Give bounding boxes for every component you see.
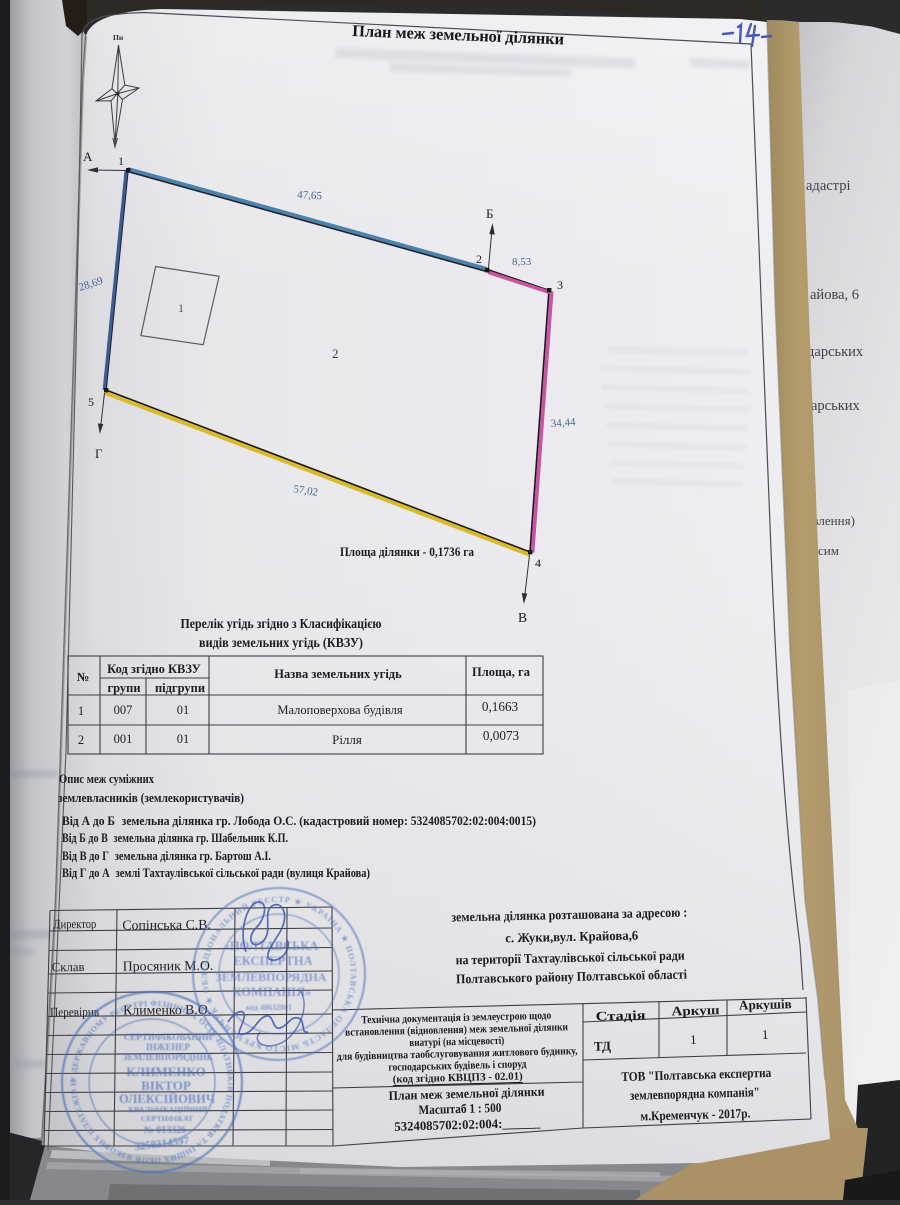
svg-text:КОМПАНІЯ»: КОМПАНІЯ» [233,985,312,999]
svg-text:0,1663: 0,1663 [482,699,519,714]
svg-text:001: 001 [114,732,133,746]
svg-text:1: 1 [762,1027,769,1042]
svg-text:2: 2 [476,252,482,266]
svg-text:Стадія: Стадія [595,1007,645,1023]
svg-text:ТД: ТД [594,1038,611,1053]
svg-text:ІНЖЕНЕР: ІНЖЕНЕР [146,1042,190,1052]
svg-text:Від Г до Аземлі Тахтаулівської: Від Г до Аземлі Тахтаулівської сільської… [62,866,370,880]
svg-text:Рілля: Рілля [332,732,362,747]
svg-text:КВАЛІФІКАЦІЙНИЙ: КВАЛІФІКАЦІЙНИЙ [128,1105,207,1114]
svg-text:ОЛЕКСІЙОВИЧ: ОЛЕКСІЙОВИЧ [119,1092,215,1106]
svg-text:дарських: дарських [807,344,864,360]
svg-text:4: 4 [535,556,541,570]
svg-text:Склав: Склав [52,960,85,974]
svg-text:Площа ділянки - 0,1736 га: Площа ділянки - 0,1736 га [340,544,474,559]
svg-text:землевласників (землекористува: землевласників (землекористувачів) [58,791,244,805]
svg-text:ВІКТОР: ВІКТОР [141,1078,191,1093]
svg-text:Аркушів: Аркушів [739,996,792,1012]
svg-text:8,53: 8,53 [512,256,532,268]
svg-text:№: № [77,670,90,684]
svg-text:0,0073: 0,0073 [483,728,520,743]
svg-text:Перевірив: Перевірив [50,1005,99,1019]
svg-text:м.Кременчук - 2017р.: м.Кременчук - 2017р. [640,1105,750,1123]
svg-text:01: 01 [177,732,190,746]
svg-text:Від Б до Вземельна ділянка гр.: Від Б до Вземельна ділянка гр. Шабельник… [62,831,288,845]
svg-text:1: 1 [78,704,84,718]
svg-text:ЗЕМЛЕВПОРЯДНА: ЗЕМЛЕВПОРЯДНА [216,970,327,984]
svg-text:Від В до Гземельна ділянка гр.: Від В до Гземельна ділянка гр. Бартош А.… [62,849,271,863]
svg-text:1: 1 [690,1032,697,1047]
svg-text:Сопінська С.В.: Сопінська С.В. [122,917,211,933]
svg-text:підгрупи: підгрупи [155,681,205,695]
svg-text:Площа, га: Площа, га [472,665,531,679]
svg-text:ЗЕМЛЕВПОРЯДНИК: ЗЕМЛЕВПОРЯДНИК [123,1052,214,1062]
svg-text:01: 01 [177,703,190,717]
svg-text:Код згідно КВЗУ: Код згідно КВЗУ [107,662,201,676]
svg-text:34,44: 34,44 [550,416,576,430]
svg-text:В: В [518,610,527,625]
svg-text:видів земельних угідь (КВЗУ): видів земельних угідь (КВЗУ) [199,635,363,650]
svg-text:47,65: 47,65 [297,189,323,202]
svg-text:Б: Б [486,206,493,221]
svg-text:адастрі: адастрі [806,178,850,194]
svg-text:Перелік угідь згідно з Класифі: Перелік угідь згідно з Класифікацією [181,616,382,631]
svg-text:групи: групи [107,681,140,695]
svg-text:1: 1 [118,154,124,168]
svg-text:СЕРТИФІКОВАНИЙ: СЕРТИФІКОВАНИЙ [124,1032,213,1042]
svg-text:№ 013326: № 013326 [144,1125,187,1136]
svg-text:Просяник М.О.: Просяник М.О. [123,958,214,974]
svg-text:Назва земельних угідь: Назва земельних угідь [274,667,402,681]
svg-text:Пн: Пн [113,33,124,42]
svg-text:арських: арських [811,398,861,414]
svg-text:1: 1 [178,301,184,315]
svg-text:Масштаб 1 : 500: Масштаб 1 : 500 [418,1100,501,1117]
svg-text:Аркуш: Аркуш [671,1002,719,1018]
svg-text:007: 007 [114,703,133,717]
svg-text:Директор: Директор [53,917,96,931]
svg-text:Малоповерхова будівля: Малоповерхова будівля [277,703,402,717]
svg-text:3: 3 [557,278,563,292]
svg-text:Від А до Бземельна ділянка гр.: Від А до Бземельна ділянка гр. Лобода О.… [62,814,536,828]
svg-text:Опис меж суміжних: Опис меж суміжних [59,772,155,786]
svg-text:2: 2 [332,346,339,361]
svg-text:А: А [83,149,93,164]
svg-text:Г: Г [95,446,103,461]
svg-text:СЕРТИФІКАТ: СЕРТИФІКАТ [141,1114,194,1123]
svg-text:код 40632801: код 40632801 [246,1003,292,1012]
svg-text:2: 2 [78,733,84,747]
svg-text:5: 5 [88,395,94,409]
svg-text:КЛИМЕНКО: КЛИМЕНКО [126,1064,206,1079]
svg-text:айова, 6: айова, 6 [810,287,859,303]
svg-text:с. Жуки,вул. Крайова,6: с. Жуки,вул. Крайова,6 [505,928,639,946]
